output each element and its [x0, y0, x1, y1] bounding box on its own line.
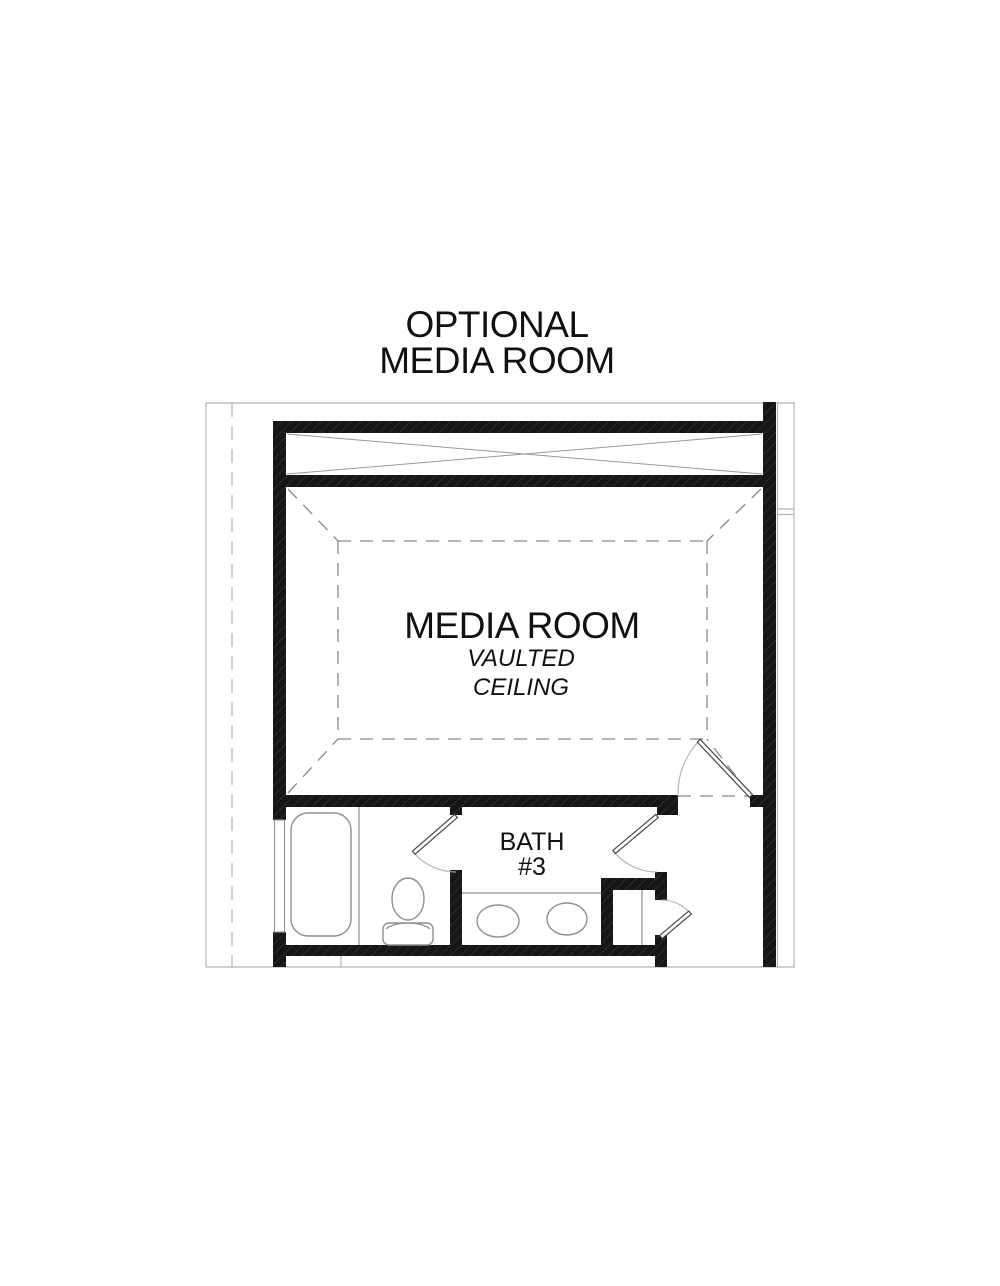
media-room-label: MEDIA ROOM [404, 605, 640, 646]
bathtub-icon [291, 813, 351, 936]
floorplan-page: OPTIONAL MEDIA ROOM MEDIA ROOM VAULTED C… [0, 0, 1000, 1286]
wall-bath-left-door-upper [450, 795, 462, 815]
labels: OPTIONAL MEDIA ROOM MEDIA ROOM VAULTED C… [379, 304, 640, 881]
bath-number: #3 [518, 853, 546, 881]
wall-band-bottom [273, 475, 763, 487]
bath-fixtures [291, 807, 642, 945]
toilet-bowl [392, 878, 424, 920]
wall-top [273, 421, 763, 433]
door-swing-arc [614, 852, 657, 872]
window-frame [275, 820, 285, 932]
door-swing-arc [414, 853, 456, 872]
bath-label: BATH [500, 828, 565, 856]
ceiling-truss-band [287, 434, 762, 474]
media-room-corner-door [678, 739, 752, 797]
wall-right [763, 402, 776, 967]
closet-door [660, 900, 692, 939]
door-leaf [697, 739, 752, 797]
vault-diagonal-top-right [707, 489, 761, 541]
toilet-icon [383, 878, 433, 945]
wall-media-bottom-end-stub [657, 795, 678, 815]
vault-diagonal-top-left [288, 489, 338, 541]
door-swing-arc [678, 741, 699, 796]
plan-title-line2: MEDIA ROOM [379, 340, 615, 381]
door-leaf [660, 911, 692, 938]
sink-right-icon [547, 903, 587, 935]
wall-closet-left [601, 878, 613, 956]
window [275, 820, 285, 932]
bath-left-door [412, 814, 457, 872]
ceiling-note: CEILING [473, 674, 569, 701]
vault-diagonal-bottom-left [288, 739, 338, 793]
wall-corner-door-stub [750, 795, 763, 807]
wall-media-bottom [273, 795, 678, 807]
floor-plan-drawing: OPTIONAL MEDIA ROOM MEDIA ROOM VAULTED C… [0, 0, 1000, 1286]
sink-left-icon [477, 905, 519, 937]
vaulted-note: VAULTED [467, 645, 575, 672]
door-swing-arc [661, 900, 690, 913]
plan-title-line1: OPTIONAL [405, 304, 588, 345]
bath-right-door [613, 814, 658, 872]
wall-bath-left-door-lower [450, 870, 462, 956]
door-leaf [412, 814, 457, 854]
door-leaf [613, 814, 658, 853]
wall-bottom [273, 945, 667, 956]
vanity [462, 893, 601, 937]
